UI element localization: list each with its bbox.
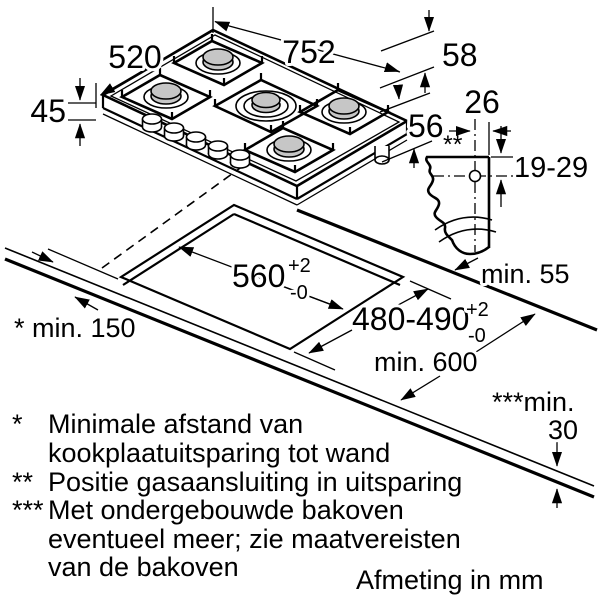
footnote-3-line-1: Met ondergebouwde bakoven xyxy=(48,495,404,525)
burner-wok-center xyxy=(236,91,296,121)
label-480-490-tol-down: -0 xyxy=(468,325,486,347)
clearance-side-min150: * min. 150 xyxy=(14,252,136,343)
label-height-45: 45 xyxy=(30,93,66,129)
label-width-752: 752 xyxy=(282,34,335,70)
gas-connection-detail: 26 ** 19-29 xyxy=(426,84,588,254)
footnote-1-line-2: kookplaatuitsparing tot wand xyxy=(48,438,390,468)
footnote-2-marker: ** xyxy=(12,467,34,497)
label-min-30-value: 30 xyxy=(548,415,578,445)
label-58: 58 xyxy=(442,37,478,73)
units-note: Afmeting in mm xyxy=(356,565,544,595)
cutout-section-outline xyxy=(426,157,489,254)
dimension-height-45: 45 xyxy=(30,78,96,146)
label-480-490-tol-up: +2 xyxy=(466,299,489,321)
footnote-3-line-2: eventueel meer; zie maatvereisten xyxy=(48,524,461,554)
label-min-150: * min. 150 xyxy=(14,313,136,343)
control-knob-4 xyxy=(209,141,228,159)
label-min-55: min. 55 xyxy=(481,259,570,289)
control-knob-1 xyxy=(143,114,162,132)
footnote-1-line-1: Minimale afstand van xyxy=(48,409,303,439)
footnote-1-marker: * xyxy=(12,409,23,439)
control-knob-2 xyxy=(165,123,184,141)
footnotes: * Minimale afstand van kookplaatuitspari… xyxy=(12,409,462,582)
label-480-490: 480-490 xyxy=(352,301,469,337)
gas-connection-point xyxy=(470,171,481,182)
label-26: 26 xyxy=(464,84,500,120)
footnote-3-marker: *** xyxy=(12,495,44,525)
control-knob-3 xyxy=(187,132,206,150)
label-min-600: min. 600 xyxy=(374,347,478,377)
installation-diagram: 752 520 45 58 56 xyxy=(0,0,600,600)
label-560-tol-up: +2 xyxy=(288,255,311,277)
footnote-2-line-1: Positie gasaansluiting in uitsparing xyxy=(48,467,462,497)
dimension-58: 58 xyxy=(380,10,478,93)
label-19-29: 19-29 xyxy=(514,152,588,184)
clearance-oven-min30: ***min. 30 xyxy=(492,387,578,508)
label-double-asterisk: ** xyxy=(443,131,463,159)
label-min-30-prefix: ***min. xyxy=(492,387,575,417)
installation-diagram-page: 752 520 45 58 56 xyxy=(0,0,600,600)
clearance-rear-min55: min. 55 xyxy=(455,258,570,289)
footnote-3-line-3: van de bakoven xyxy=(48,552,239,582)
dimension-cutout-560: 560 +2 -0 xyxy=(179,247,343,309)
label-560-tol-down: -0 xyxy=(290,282,308,304)
control-knob-5 xyxy=(231,150,250,168)
label-depth-520: 520 xyxy=(108,39,161,75)
label-56: 56 xyxy=(408,108,444,144)
label-560: 560 xyxy=(232,258,285,294)
